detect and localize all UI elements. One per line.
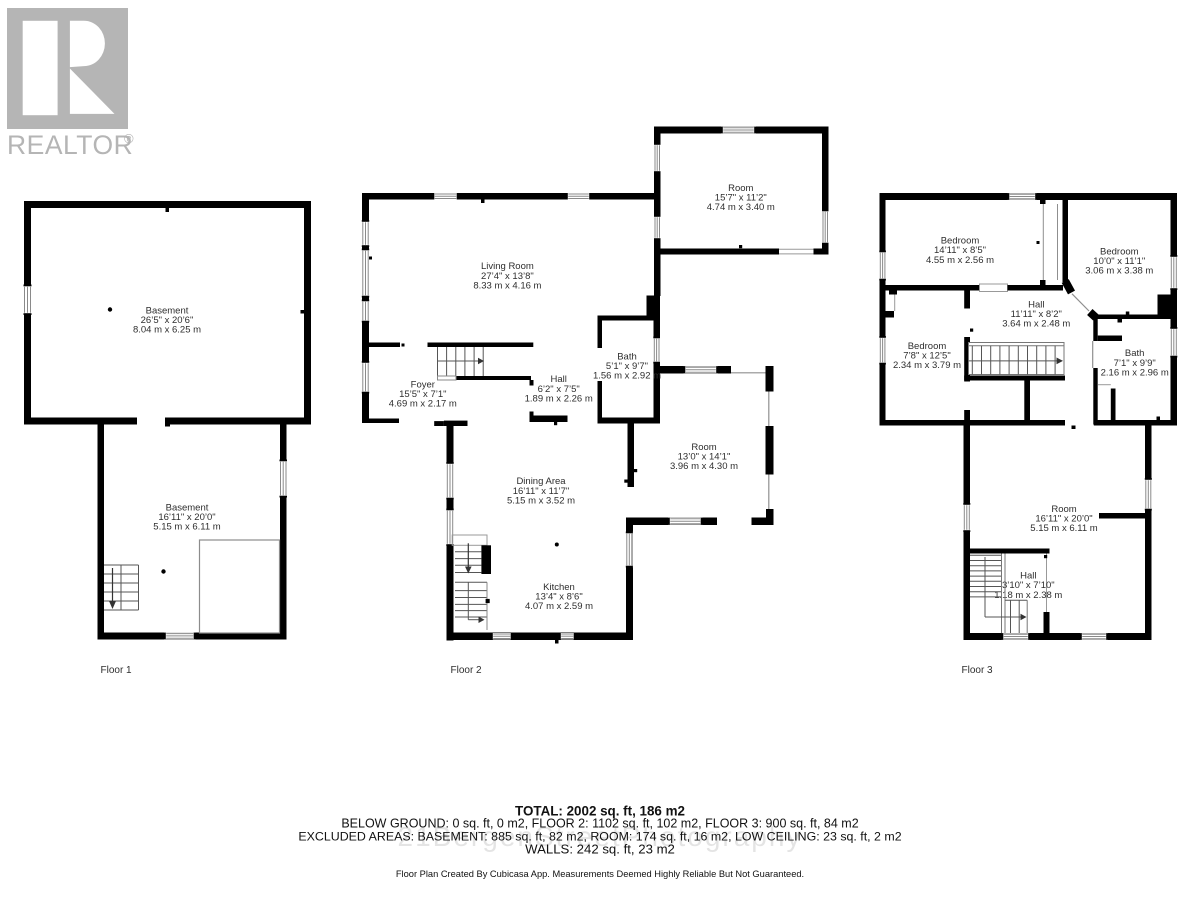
svg-text:REALTOR: REALTOR [7, 130, 133, 160]
svg-text:Dining Area16’11" x 11’7"5.15: Dining Area16’11" x 11’7"5.15 m x 3.52 m [507, 476, 575, 506]
svg-text:Floor Plan Created By Cubicasa: Floor Plan Created By Cubicasa App. Meas… [396, 869, 804, 879]
svg-text:Floor 2: Floor 2 [451, 665, 483, 676]
svg-text:Floor 1: Floor 1 [101, 665, 133, 676]
svg-text:Living Room27’4" x 13’8"8.33 m: Living Room27’4" x 13’8"8.33 m x 4.16 m [473, 261, 541, 291]
svg-text:®: ® [124, 131, 134, 146]
svg-text:BELOW GROUND: 0 sq. ft, 0 m2,: BELOW GROUND: 0 sq. ft, 0 m2, FLOOR 2: 1… [341, 817, 858, 831]
svg-text:Floor 3: Floor 3 [962, 665, 994, 676]
svg-text:WALLS: 242 sq. ft, 23 m2: WALLS: 242 sq. ft, 23 m2 [525, 841, 675, 856]
